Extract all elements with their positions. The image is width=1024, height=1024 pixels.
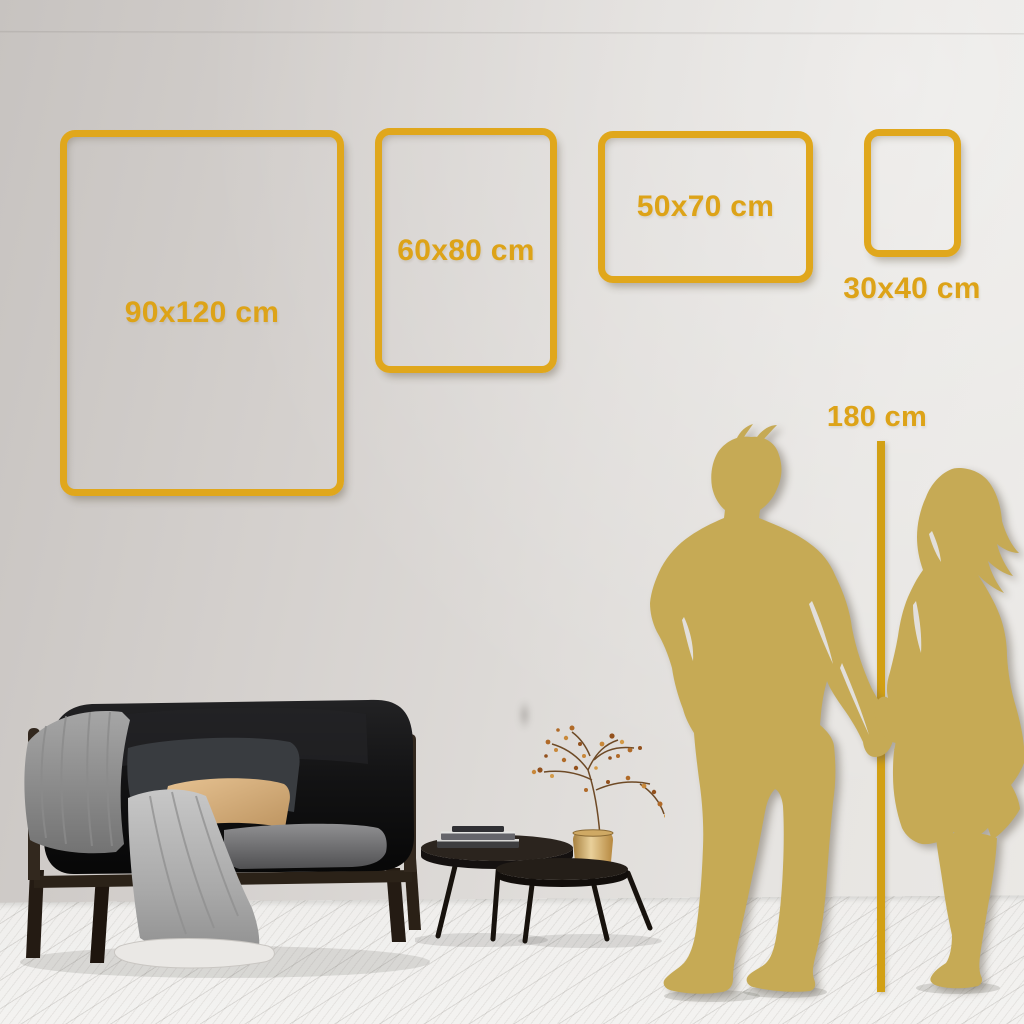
size-frame-30x40 [864, 129, 961, 257]
sofa-seat-cushion [224, 824, 387, 869]
man-silhouette [650, 424, 894, 994]
woman-silhouette [875, 468, 1024, 988]
size-frame-60x80-label: 60x80 cm [397, 234, 535, 268]
sofa-illustration [0, 680, 440, 980]
size-frame-50x70-label: 50x70 cm [637, 190, 775, 224]
books-stack [437, 826, 519, 848]
floor-cloth [114, 939, 274, 969]
size-frame-30x40-label: 30x40 cm [812, 272, 1012, 306]
size-frame-60x80: 60x80 cm [375, 128, 557, 373]
size-frame-90x120-label: 90x120 cm [125, 296, 280, 330]
small-table-top [496, 858, 628, 887]
couple-silhouettes [640, 420, 1024, 1024]
coffee-tables-illustration [415, 725, 665, 950]
size-frame-90x120: 90x120 cm [60, 130, 344, 496]
throw-blanket-arm [24, 711, 130, 853]
room-scene: 90x120 cm 60x80 cm 50x70 cm 30x40 cm 180… [0, 0, 1024, 1024]
size-frame-50x70: 50x70 cm [598, 131, 813, 283]
